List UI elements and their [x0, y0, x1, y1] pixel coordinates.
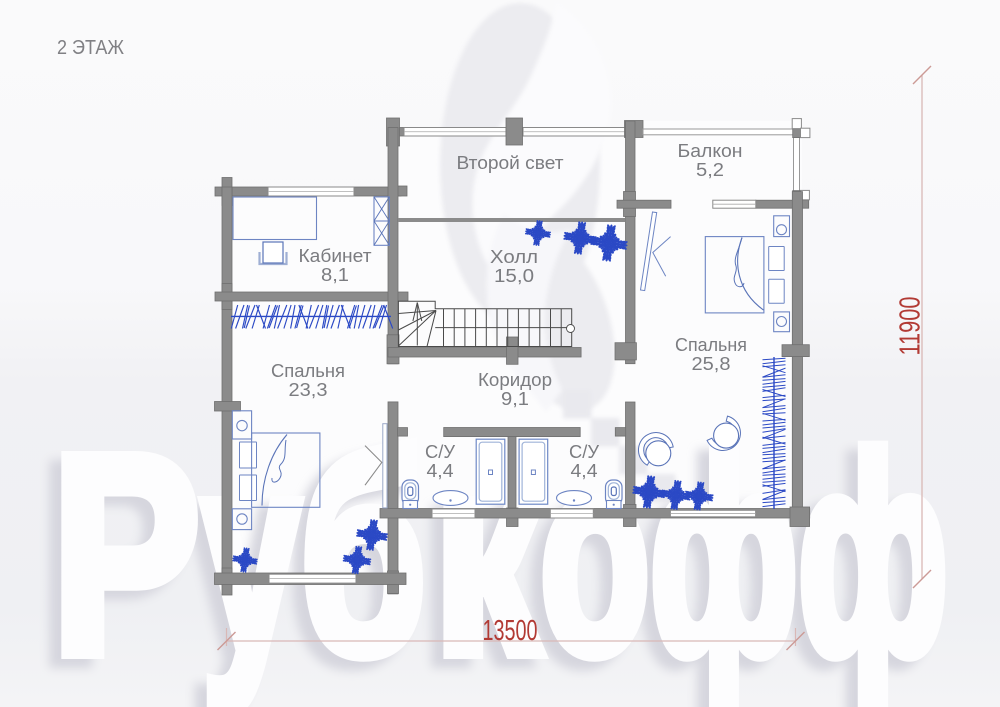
svg-text:ф: ф: [798, 397, 948, 707]
svg-text:Балкон: Балкон: [678, 140, 743, 161]
svg-text:Р: Р: [52, 397, 200, 707]
svg-text:8,1: 8,1: [321, 264, 349, 285]
svg-text:Кабинет: Кабинет: [299, 245, 373, 266]
svg-text:4,4: 4,4: [571, 460, 598, 481]
svg-text:5,2: 5,2: [696, 159, 724, 180]
svg-text:2 ЭТАЖ: 2 ЭТАЖ: [57, 37, 124, 59]
svg-text:С/У: С/У: [425, 441, 455, 462]
svg-text:б: б: [300, 397, 426, 707]
svg-text:15,0: 15,0: [494, 265, 534, 286]
svg-text:Спальня: Спальня: [675, 334, 747, 355]
svg-text:Второй свет: Второй свет: [457, 152, 565, 173]
svg-text:Коридор: Коридор: [478, 369, 552, 390]
svg-text:25,8: 25,8: [692, 353, 731, 374]
svg-text:13500: 13500: [483, 615, 538, 647]
svg-text:4,4: 4,4: [427, 460, 454, 481]
svg-text:23,3: 23,3: [289, 379, 328, 400]
svg-text:11900: 11900: [895, 297, 927, 356]
svg-text:Холл: Холл: [490, 246, 538, 267]
svg-text:9,1: 9,1: [501, 388, 529, 409]
svg-text:Спальня: Спальня: [271, 360, 345, 381]
svg-text:С/У: С/У: [569, 441, 599, 462]
